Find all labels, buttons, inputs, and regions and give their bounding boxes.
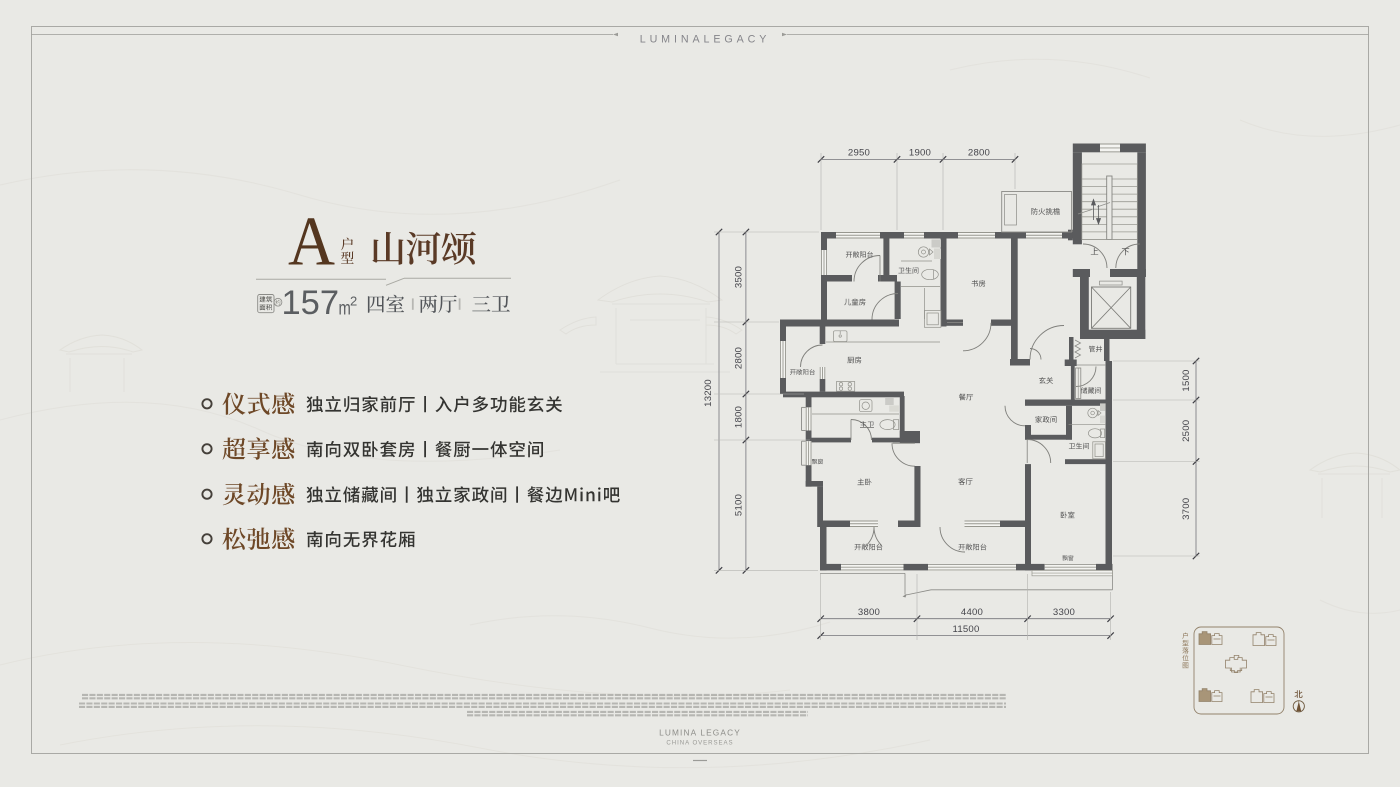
svg-text:5100: 5100 [734,494,745,516]
svg-text:LUMINA LEGACY: LUMINA LEGACY [659,728,741,738]
svg-text:3500: 3500 [734,266,745,288]
svg-text:2500: 2500 [1181,420,1192,442]
svg-text:1500: 1500 [1181,369,1192,391]
svg-text:2: 2 [350,294,357,309]
svg-text:11500: 11500 [953,624,980,635]
svg-text:1900: 1900 [909,147,931,158]
svg-text:2950: 2950 [848,147,870,158]
svg-text:3700: 3700 [1181,498,1192,520]
svg-text:LUMINALEGACY: LUMINALEGACY [640,34,771,46]
svg-text:3300: 3300 [1053,607,1075,618]
svg-text:A: A [288,202,335,280]
svg-text:m: m [339,296,351,319]
svg-text:2800: 2800 [734,347,745,369]
svg-text:3800: 3800 [858,607,880,618]
svg-text:1800: 1800 [734,406,745,428]
svg-text:CHINA OVERSEAS: CHINA OVERSEAS [666,740,733,747]
svg-text:2800: 2800 [968,147,990,158]
svg-text:13200: 13200 [703,379,714,407]
svg-text:4400: 4400 [961,607,983,618]
svg-text:157: 157 [282,284,340,322]
